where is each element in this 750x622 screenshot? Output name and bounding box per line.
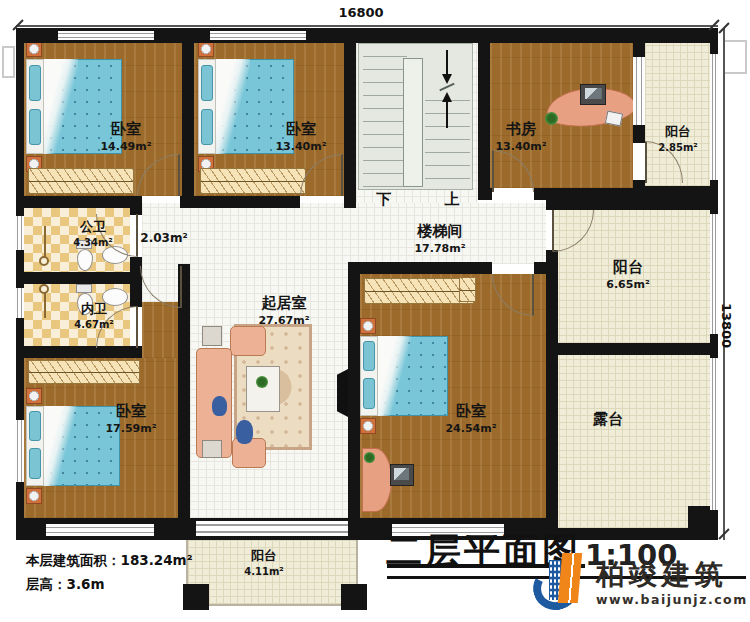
wall-interior [16, 196, 140, 208]
window [710, 214, 718, 334]
plant-icon [545, 112, 558, 125]
pillow [29, 109, 41, 145]
room-area: 2.85m² [658, 141, 697, 154]
stair-arrow-down-icon [442, 74, 452, 84]
nightstand [198, 41, 214, 57]
room-label-bedroom-bl: 卧室 17.59m² [105, 402, 156, 436]
toilet-icon [76, 284, 92, 293]
wall-interior [633, 40, 645, 57]
room-label-bath-public: 公卫 4.34m² [73, 219, 112, 249]
stair-direction-down: 下 [377, 190, 392, 209]
corridor-area-label: 2.03m² [140, 231, 187, 245]
balcony-column [341, 584, 367, 610]
window [15, 216, 24, 250]
tv-icon [337, 369, 348, 417]
wall-interior [182, 28, 194, 208]
floor-plan: 卧室 14.49m² 卧室 13.40m² 书房 13.40m² 阳台 2.85… [0, 0, 750, 622]
room-label-terrace: 露台 [593, 410, 623, 430]
room-floor-entry-wood [142, 302, 178, 358]
room-name: 卧室 [100, 120, 151, 140]
window [710, 54, 718, 180]
room-name: 卧室 [445, 402, 496, 422]
person-figure [236, 420, 253, 444]
plant-icon [364, 452, 375, 463]
pillow [29, 65, 41, 101]
room-area: 13.40m² [495, 140, 546, 154]
wall-balcony-top [546, 198, 718, 210]
room-name: 内卫 [74, 301, 113, 318]
room-area: 13.40m² [275, 140, 326, 154]
pillow [363, 341, 375, 371]
nightstand [26, 41, 42, 57]
exterior-pier-outline [723, 40, 747, 74]
room-name: 阳台 [244, 548, 283, 565]
wall-corner-block [688, 506, 718, 538]
wall-interior [344, 28, 356, 208]
window [210, 31, 306, 40]
room-name: 阳台 [606, 258, 649, 278]
shower-head-icon [39, 256, 49, 266]
room-area: 17.59m² [105, 422, 156, 436]
balcony-column [183, 584, 209, 610]
stair-direction-up: 上 [445, 190, 460, 209]
room-label-balcony-tr: 阳台 2.85m² [658, 124, 697, 154]
armchair [230, 326, 266, 356]
wall-interior [348, 262, 360, 520]
stair-center-rail [403, 58, 423, 187]
room-area: 6.65m² [606, 278, 649, 292]
shower-head-icon [39, 284, 49, 294]
floor-height-note: 层高：3.6m [26, 576, 104, 594]
room-name: 卧室 [275, 120, 326, 140]
room-label-bedroom-tm: 卧室 13.40m² [275, 120, 326, 154]
window [46, 524, 154, 536]
exterior-pier-outline [2, 46, 15, 78]
logo-company-name: 柏竣建筑 [596, 556, 728, 594]
wall-interior [546, 250, 558, 528]
dimension-right: 13800 [719, 303, 734, 348]
dimension-line-right [723, 28, 725, 540]
logo-website: www.baijunjz.com [596, 592, 748, 607]
room-label-study: 书房 13.40m² [495, 120, 546, 154]
nightstand [26, 488, 42, 504]
wall-interior [534, 262, 546, 274]
window [633, 57, 645, 125]
blanket-fold [44, 59, 78, 154]
stair-arrow-up-icon [442, 92, 452, 102]
floor-height-value: 3.6m [67, 576, 105, 592]
person-figure [212, 396, 227, 416]
wall-interior [645, 186, 718, 198]
wall-interior [348, 262, 492, 274]
wall-balcony-terrace [546, 343, 718, 355]
room-area: 14.49m² [100, 140, 151, 154]
stair-arrow-stem [446, 102, 448, 128]
wall-interior [478, 188, 492, 200]
wall-interior [633, 180, 645, 200]
wall-interior [633, 125, 645, 143]
window [15, 288, 24, 318]
room-label-balcony-r: 阳台 6.65m² [606, 258, 649, 292]
wardrobe [28, 168, 134, 194]
wall-interior [344, 196, 356, 208]
room-area: 4.67m² [74, 318, 113, 331]
room-label-bedroom-tl: 卧室 14.49m² [100, 120, 151, 154]
room-area: 27.67m² [258, 314, 309, 328]
blanket-fold [44, 406, 78, 486]
side-table [202, 440, 222, 458]
room-area: 17.78m² [414, 242, 465, 256]
flower-icon [256, 376, 268, 388]
wardrobe [200, 168, 306, 194]
room-area: 4.34m² [73, 236, 112, 249]
room-name: 卧室 [105, 402, 156, 422]
room-label-stairwell: 楼梯间 17.78m² [414, 222, 465, 256]
console-table [459, 277, 476, 302]
blanket-fold [378, 336, 412, 416]
nightstand [360, 318, 376, 334]
pillow [201, 109, 213, 145]
floor-area-note: 本层建筑面积：183.24m² [26, 552, 193, 570]
wardrobe [28, 360, 140, 384]
computer-icon [390, 464, 414, 486]
dimension-line-top [16, 25, 718, 27]
side-table [202, 326, 222, 346]
coffee-table [246, 366, 280, 412]
stair-arrow-stem [446, 50, 448, 74]
wall-bath-divider [16, 272, 142, 284]
room-label-bath-private: 内卫 4.67m² [74, 301, 113, 331]
stair-treads-left [363, 56, 407, 187]
room-name: 书房 [495, 120, 546, 140]
pillow [201, 65, 213, 101]
nightstand [360, 418, 376, 434]
blanket-fold [216, 59, 250, 154]
room-label-bedroom-br: 卧室 24.54m² [445, 402, 496, 436]
wardrobe [364, 278, 474, 304]
room-name: 阳台 [658, 124, 697, 141]
shower-rail [44, 226, 46, 260]
pillow [29, 448, 41, 478]
room-label-balcony-b: 阳台 4.11m² [244, 548, 283, 578]
bed [360, 336, 448, 416]
wall-interior [180, 196, 300, 208]
room-area: 4.11m² [244, 565, 283, 578]
floor-area-label: 本层建筑面积： [26, 552, 121, 568]
window [15, 420, 24, 482]
pillow [29, 411, 41, 441]
window [710, 358, 718, 510]
room-floor-corridor [142, 203, 546, 264]
staircase [358, 43, 473, 190]
nightstand [26, 388, 42, 404]
floor-area-value: 183.24m² [121, 552, 193, 568]
window [58, 31, 154, 40]
pillow [363, 378, 375, 408]
wall-interior [478, 28, 490, 200]
logo-building-icon [558, 553, 582, 603]
room-label-living: 起居室 27.67m² [258, 294, 309, 328]
room-name: 露台 [593, 410, 623, 430]
computer-icon [580, 84, 606, 105]
shower-rail [44, 290, 46, 318]
wall-interior [130, 196, 142, 215]
room-area: 24.54m² [445, 422, 496, 436]
room-name: 公卫 [73, 219, 112, 236]
sliding-door [196, 521, 348, 536]
floor-height-label: 层高： [26, 576, 67, 592]
room-name: 起居室 [258, 294, 309, 314]
dimension-top: 16800 [330, 5, 392, 20]
room-name: 楼梯间 [414, 222, 465, 242]
room-floor-terrace [552, 355, 710, 528]
